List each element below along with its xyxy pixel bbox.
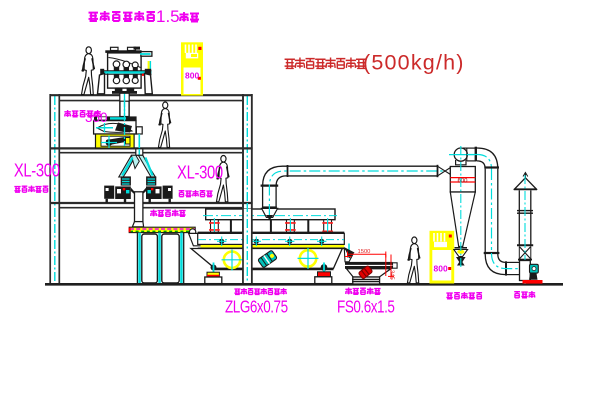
svg-text:800: 800 (434, 264, 448, 274)
svg-text:1.5: 1.5 (156, 7, 180, 26)
svg-text:800: 800 (185, 71, 199, 81)
svg-text:(500kg/h): (500kg/h) (363, 51, 465, 75)
svg-text:ZLG6x0.75: ZLG6x0.75 (225, 298, 288, 317)
svg-text:350: 350 (85, 110, 108, 125)
svg-text:FS0.6x1.5: FS0.6x1.5 (337, 298, 395, 317)
svg-text:1500: 1500 (358, 249, 371, 255)
svg-text:345: 345 (388, 270, 394, 280)
svg-text:600: 600 (458, 178, 469, 184)
svg-text:XL-300: XL-300 (177, 162, 223, 183)
svg-text:XL-300: XL-300 (14, 160, 60, 181)
